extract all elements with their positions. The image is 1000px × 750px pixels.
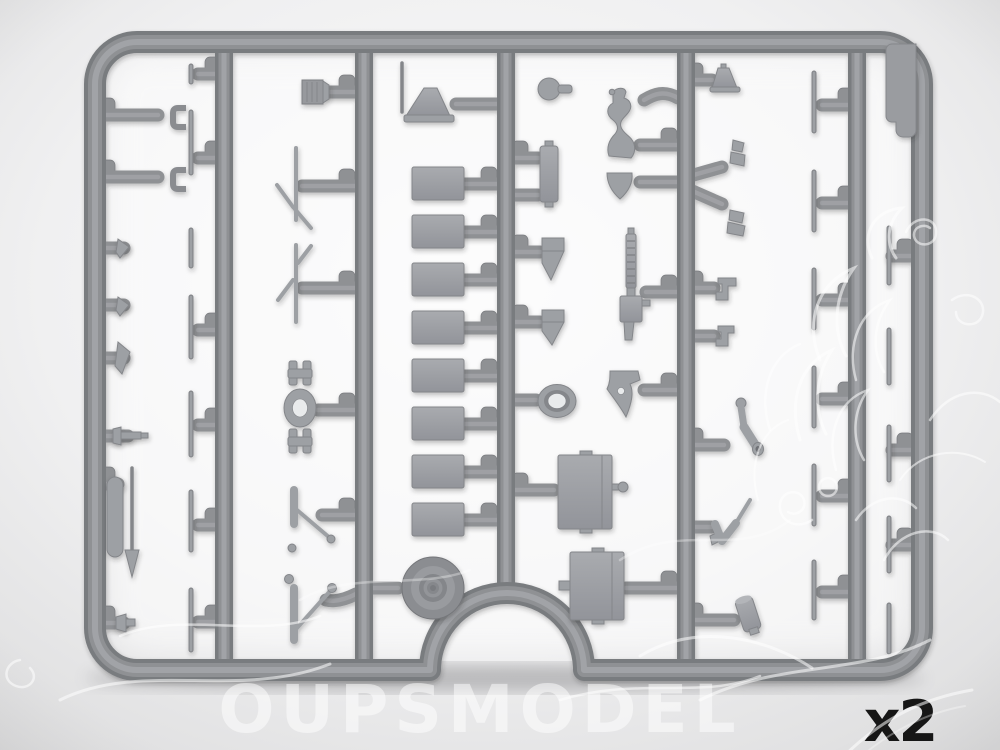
- engine-block-1: [412, 167, 464, 200]
- engine-block-5: [412, 359, 464, 392]
- watermark-text: OUPSMODEL: [218, 671, 741, 748]
- engine-block-3: [412, 263, 464, 296]
- radiator-box: [302, 80, 329, 104]
- engine-block-2: [412, 215, 464, 248]
- engine-block-8: [412, 503, 464, 536]
- engine-block-6: [412, 407, 464, 440]
- quantity-label: x2: [864, 689, 936, 750]
- engine-block-7: [412, 455, 464, 488]
- pill-bar: [107, 477, 123, 557]
- sprue-photo: OUPSMODEL x2: [0, 0, 1000, 750]
- road-wheel: [402, 557, 464, 619]
- photo-canvas: OUPSMODEL x2: [0, 0, 1000, 750]
- coupling-joint: [284, 361, 316, 453]
- engine-block-4: [412, 311, 464, 344]
- fuel-cylinder: [540, 141, 558, 207]
- oval-pad: [538, 385, 576, 418]
